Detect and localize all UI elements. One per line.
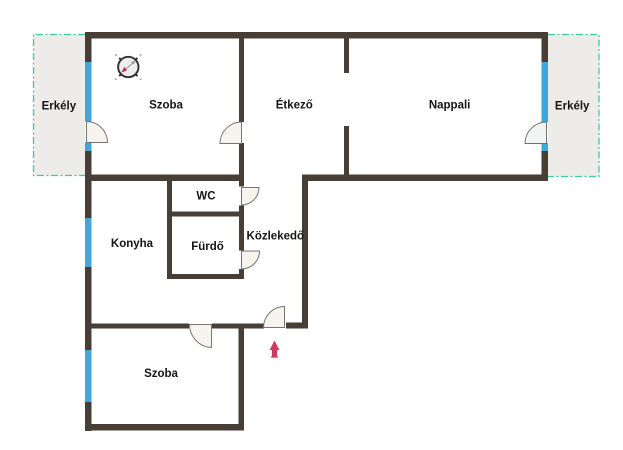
svg-text:Szoba: Szoba bbox=[144, 368, 178, 380]
svg-text:Erkély: Erkély bbox=[555, 101, 590, 113]
svg-text:Nappali: Nappali bbox=[429, 100, 471, 112]
svg-text:Fürdő: Fürdő bbox=[191, 241, 224, 253]
svg-text:Konyha: Konyha bbox=[111, 238, 154, 250]
svg-text:Étkező: Étkező bbox=[276, 99, 313, 112]
svg-text:WC: WC bbox=[196, 190, 215, 202]
svg-text:Közlekedő: Közlekedő bbox=[247, 231, 305, 243]
svg-text:Erkély: Erkély bbox=[42, 101, 77, 113]
svg-text:Szoba: Szoba bbox=[149, 100, 183, 112]
